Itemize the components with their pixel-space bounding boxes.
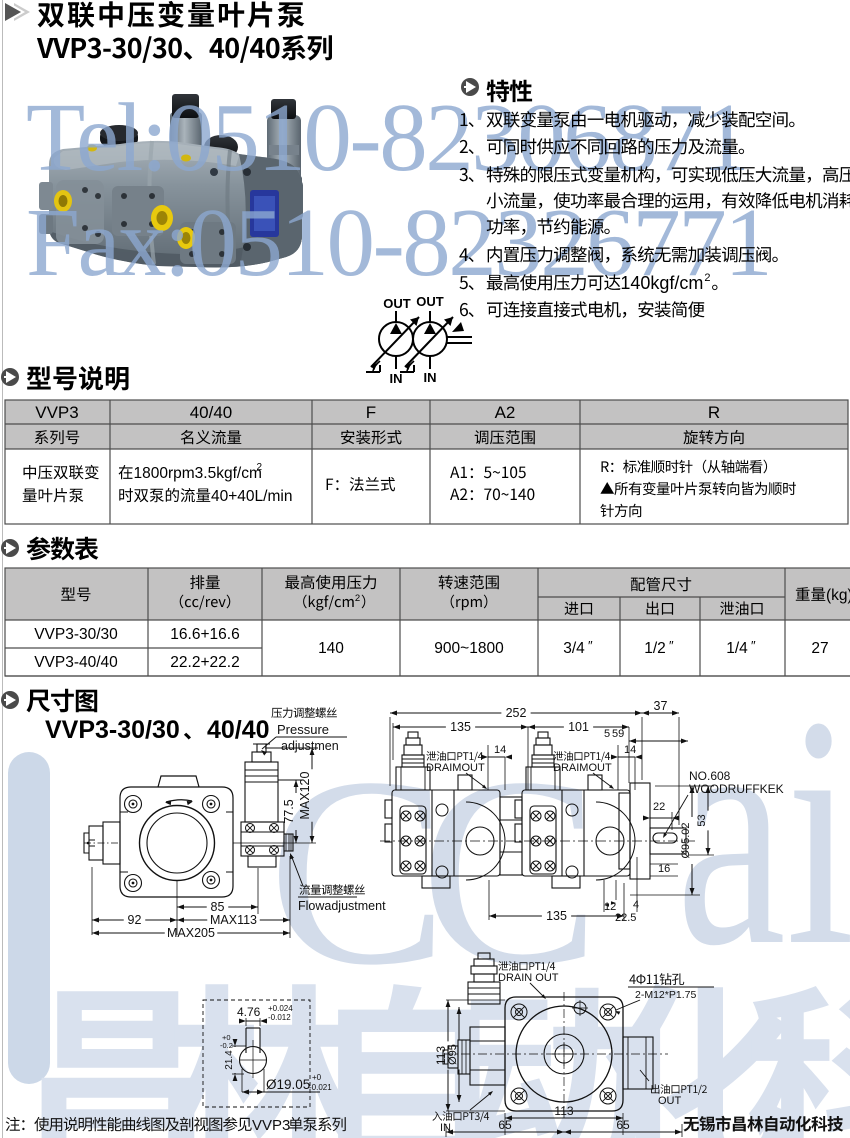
svg-text:22: 22 [653, 801, 665, 813]
svg-text:VVP3-30/30: VVP3-30/30 [34, 626, 118, 643]
svg-text:Ø95: Ø95 [447, 1044, 459, 1065]
svg-text:IN: IN [390, 371, 403, 386]
svg-text:21.4: 21.4 [224, 1050, 235, 1070]
svg-text:MAX120: MAX120 [298, 771, 312, 819]
svg-text:22.2+22.2: 22.2+22.2 [170, 654, 239, 671]
svg-text:140kgf/cm: 140kgf/cm [620, 273, 703, 293]
svg-text:16: 16 [658, 863, 670, 875]
svg-text:VVP3: VVP3 [252, 1117, 290, 1134]
svg-text:85: 85 [211, 900, 225, 914]
svg-text:-0.021: -0.021 [309, 1083, 332, 1092]
svg-text:+0.024: +0.024 [268, 1004, 293, 1013]
svg-text:77.5: 77.5 [282, 799, 296, 823]
svg-text:DRAIN OUT: DRAIN OUT [498, 972, 559, 984]
svg-text:40/40: 40/40 [207, 716, 270, 744]
svg-text:adjustmen: adjustmen [281, 739, 339, 753]
svg-text:5: 5 [604, 728, 610, 740]
svg-text:Pressure: Pressure [277, 722, 329, 737]
svg-text:VVP3-30/30: VVP3-30/30 [45, 716, 180, 744]
svg-text:WOODRUFFKEK: WOODRUFFKEK [689, 782, 784, 796]
svg-text:14: 14 [624, 744, 636, 756]
svg-text:MAX205: MAX205 [167, 926, 215, 940]
svg-text:OUT: OUT [383, 296, 411, 311]
svg-text:16.6+16.6: 16.6+16.6 [170, 626, 239, 643]
svg-text:40+40L/min: 40+40L/min [211, 488, 292, 505]
svg-text:140: 140 [318, 640, 344, 657]
svg-text:2: 2 [355, 593, 360, 604]
svg-text:22.5: 22.5 [615, 912, 636, 924]
svg-text:VVP3-40/40: VVP3-40/40 [34, 654, 118, 671]
svg-text:″: ″ [588, 638, 593, 653]
svg-text:1/4: 1/4 [726, 640, 748, 657]
svg-text:53: 53 [696, 814, 708, 826]
svg-text:40/40: 40/40 [190, 403, 233, 422]
svg-text:IN: IN [424, 370, 437, 385]
svg-text:113: 113 [554, 1104, 573, 1118]
svg-text:4.76: 4.76 [237, 1005, 261, 1019]
svg-text:900~1800: 900~1800 [434, 640, 504, 657]
svg-text:-0.2: -0.2 [220, 1041, 233, 1050]
svg-text:VVP3: VVP3 [35, 403, 78, 422]
svg-text:DRAIMOUT: DRAIMOUT [553, 762, 612, 774]
svg-text:2: 2 [257, 462, 263, 473]
svg-text:1/2: 1/2 [644, 640, 666, 657]
svg-text:2: 2 [704, 272, 710, 284]
svg-text:14: 14 [494, 744, 506, 756]
svg-text:65: 65 [616, 1118, 630, 1132]
svg-text:Ø95.02: Ø95.02 [680, 822, 692, 858]
svg-text:135: 135 [450, 720, 471, 734]
svg-text:″: ″ [751, 638, 756, 653]
svg-text:2-M12*P1.75: 2-M12*P1.75 [635, 989, 696, 1001]
svg-text:R: R [708, 403, 720, 422]
svg-text:59: 59 [612, 728, 624, 740]
svg-text:DRAIMOUT: DRAIMOUT [426, 762, 485, 774]
svg-text:″: ″ [669, 638, 674, 653]
svg-text:4: 4 [633, 899, 639, 911]
svg-text:101: 101 [568, 720, 589, 734]
svg-text:Flowadjustment: Flowadjustment [298, 899, 386, 913]
svg-text:252: 252 [506, 706, 527, 720]
svg-text:65: 65 [498, 1118, 512, 1132]
svg-text:A2: A2 [495, 403, 516, 422]
svg-text:Ø19.05: Ø19.05 [266, 1077, 310, 1092]
svg-text:+0: +0 [312, 1073, 322, 1082]
svg-text:F: F [366, 403, 376, 422]
svg-text:OUT: OUT [658, 1095, 682, 1107]
svg-text:MAX113: MAX113 [210, 913, 257, 927]
svg-text:27: 27 [811, 640, 828, 657]
svg-text:NO.608: NO.608 [689, 769, 731, 783]
svg-text:135: 135 [546, 909, 567, 923]
svg-text:-0.012: -0.012 [268, 1013, 291, 1022]
svg-text:1800rpm3.5kgf/cm: 1800rpm3.5kgf/cm [134, 465, 262, 482]
svg-text:113: 113 [434, 1046, 448, 1065]
svg-text:(kg): (kg) [826, 587, 850, 604]
svg-text:92: 92 [128, 913, 142, 927]
svg-text:OUT: OUT [416, 294, 444, 309]
svg-text:3/4: 3/4 [563, 640, 585, 657]
svg-text:37: 37 [654, 699, 668, 713]
